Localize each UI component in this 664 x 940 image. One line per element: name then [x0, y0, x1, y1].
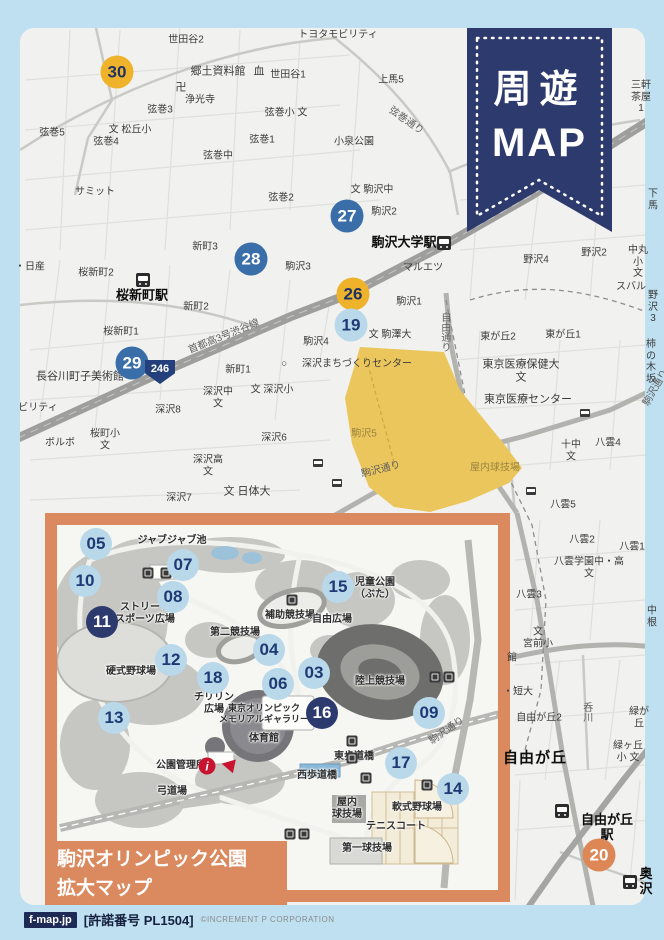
ribbon-banner: 周遊 MAP — [467, 28, 612, 166]
copyright: ©INCREMENT P CORPORATION — [201, 915, 335, 924]
fmap-logo: f-map.jp — [24, 912, 77, 928]
inset-title-line2: 拡大マップ — [57, 875, 287, 904]
excursion-map-page: 世田谷2郷土資料館血世田谷1卍浄光寺弦巻3文 松丘小弦巻5弦巻4弦巻中弦巻小 文… — [0, 0, 664, 940]
license-number: [許諾番号 PL1504] — [84, 910, 194, 929]
footer: f-map.jp [許諾番号 PL1504] ©INCREMENT P CORP… — [24, 910, 335, 929]
inset-map-title: 駒沢オリンピック公園 拡大マップ — [45, 841, 287, 905]
ribbon-title-jp: 周遊 — [467, 58, 612, 113]
ribbon-title-map: MAP — [467, 121, 612, 166]
inset-title-line1: 駒沢オリンピック公園 — [57, 846, 287, 875]
